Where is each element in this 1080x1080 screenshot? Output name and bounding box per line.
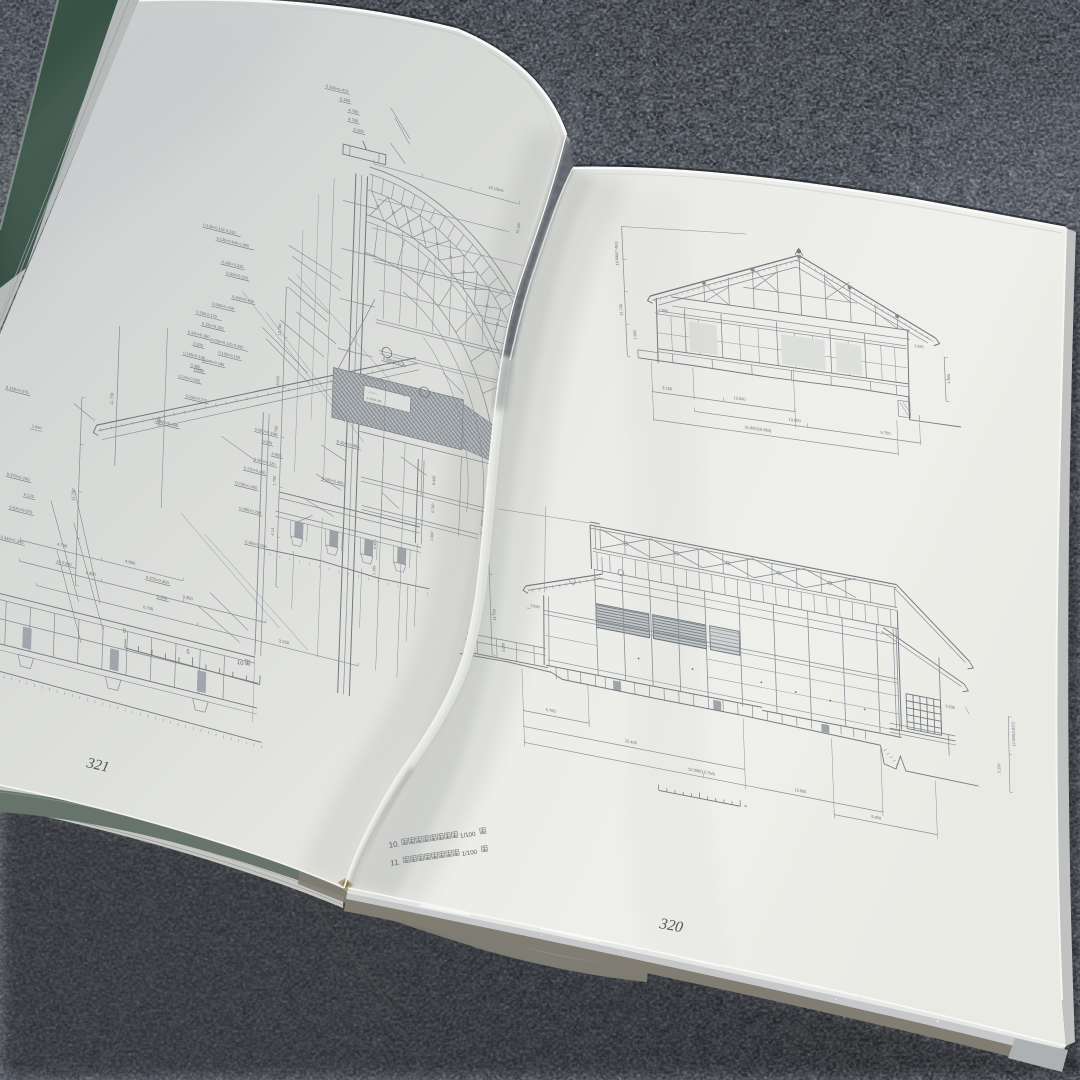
svg-text:5.750: 5.750 — [431, 503, 435, 513]
svg-text:12.605(3.837): 12.605(3.837) — [1010, 721, 1016, 747]
svg-text:5.750: 5.750 — [273, 424, 278, 436]
svg-text:1.750: 1.750 — [272, 474, 277, 486]
svg-text:2.840: 2.840 — [156, 415, 161, 427]
svg-text:1.165: 1.165 — [372, 565, 376, 575]
svg-text:3.020: 3.020 — [275, 374, 280, 386]
svg-text:5.150: 5.150 — [996, 762, 1001, 774]
svg-text:1.000: 1.000 — [430, 531, 434, 541]
svg-text:11.730: 11.730 — [109, 391, 114, 405]
svg-text:1.980: 1.980 — [633, 330, 637, 340]
svg-text:11.730: 11.730 — [618, 304, 623, 316]
svg-text:m: m — [744, 804, 747, 809]
svg-text:8.400: 8.400 — [432, 475, 436, 485]
svg-text:3.000: 3.000 — [501, 642, 505, 652]
svg-text:13.780: 13.780 — [277, 322, 282, 336]
svg-text:11.750: 11.750 — [70, 487, 75, 501]
svg-text:4.300: 4.300 — [946, 374, 951, 384]
